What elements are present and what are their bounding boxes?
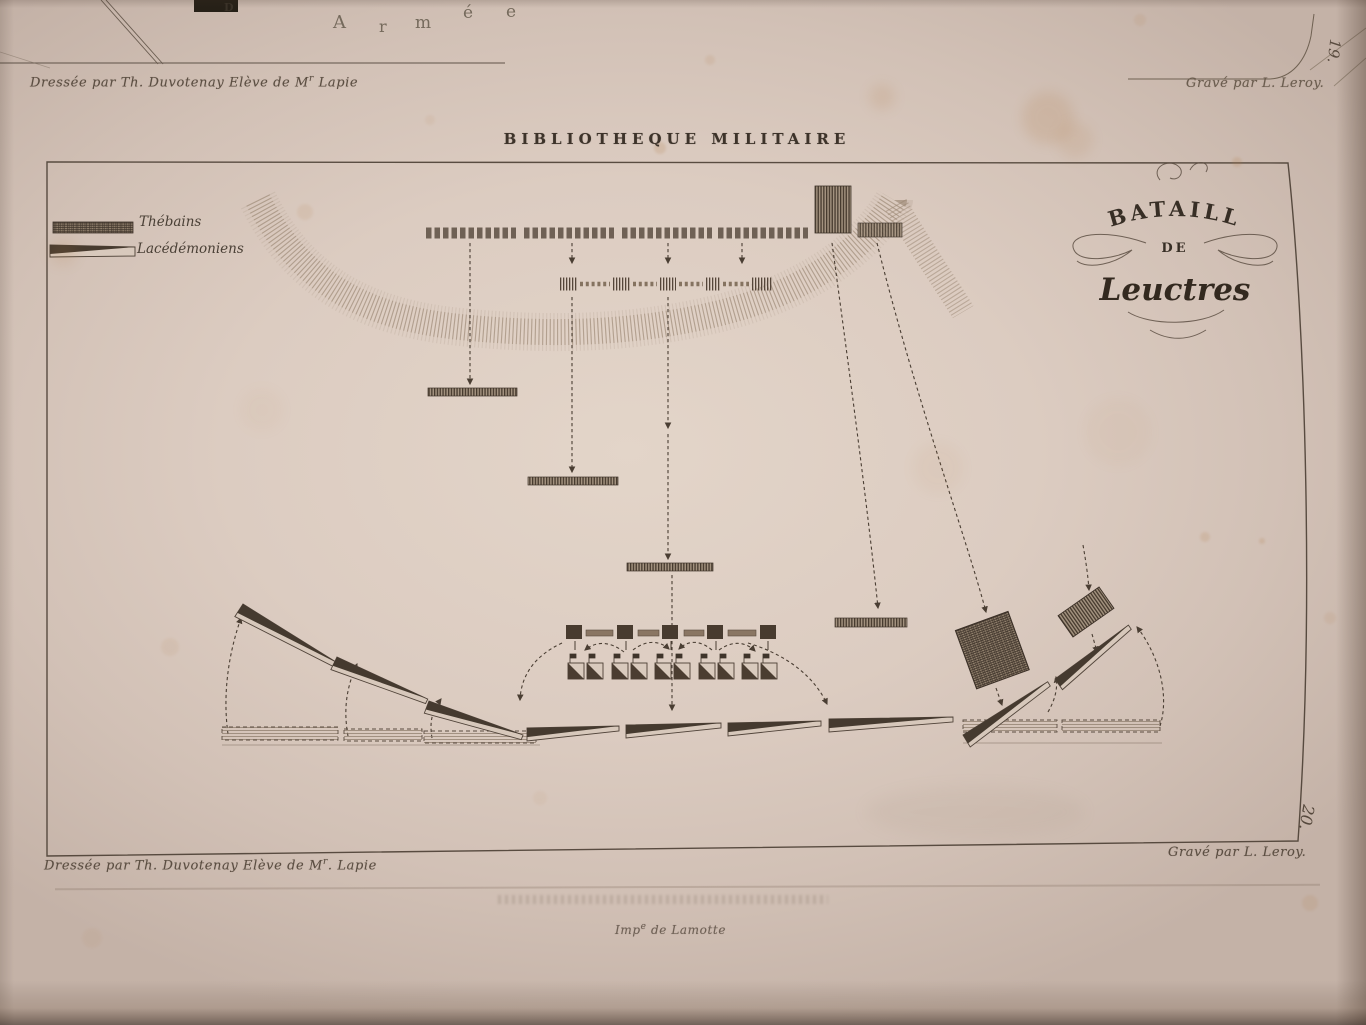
legend-symbol-thebains — [53, 222, 133, 233]
phalanx-wedge — [1054, 625, 1137, 689]
plate-credit-left: Dressée par Th. Duvotenay Elève de Mr. L… — [44, 857, 377, 873]
imprint-text: Imp — [615, 923, 641, 937]
armee-letter-e2: e — [506, 2, 516, 22]
plate-credit-right: Gravé par L. Leroy. — [1168, 845, 1306, 860]
theban-column-grid-block — [955, 611, 1029, 688]
scanned-atlas-page: BATAILLE DE Leuctres Dressée par Th. Duv… — [0, 0, 1366, 1025]
legend-label-thebains: Thébains — [139, 214, 201, 230]
upper-credit-right: Gravé par L. Leroy. — [1186, 76, 1324, 91]
upper-credit-left-end: Lapie — [314, 75, 358, 90]
phalanx-wedge — [331, 655, 428, 713]
upper-plate-fragment-letter: D — [224, 1, 234, 14]
series-title: BIBLIOTHEQUE MILITAIRE — [477, 130, 877, 148]
cartouche-title-line3: Leuctres — [1099, 272, 1251, 308]
theban-detachment-block — [1058, 587, 1114, 637]
plate-credit-left-text: Dressée par Th. Duvotenay Elève de M — [44, 858, 323, 873]
armee-letter-e1: é — [463, 3, 473, 23]
terrain-ridge-hatching — [258, 200, 963, 332]
legend-label-lacedemoniens: Lacédémoniens — [137, 241, 244, 257]
phalanx-wedge — [829, 717, 953, 732]
upper-credit-left-text: Dressée par Th. Duvotenay Elève de M — [30, 75, 309, 90]
imprint: Impe de Lamotte — [615, 922, 726, 937]
phalanx-wedge — [527, 726, 619, 741]
armee-letter-m: m — [415, 13, 431, 33]
armee-letter-r: r — [379, 17, 387, 36]
phalanx-wedge — [626, 723, 721, 738]
generated-engraving-marks — [49, 14, 1336, 948]
cartouche-title-line2: DE — [1161, 241, 1188, 256]
phalanx-wedge — [962, 682, 1056, 747]
upper-plate-number: 19. — [1324, 38, 1345, 64]
imprint-end: de Lamotte — [647, 923, 727, 937]
phalanx-baselines — [222, 743, 1162, 745]
phalanx-wedge — [728, 721, 821, 736]
plate-border-frame — [47, 162, 1307, 856]
plate-credit-left-end: . Lapie — [328, 858, 377, 873]
armee-letter-a: A — [333, 12, 346, 33]
theban-flank-block — [858, 223, 902, 237]
upper-plate-partial-title: A r m é e — [325, 0, 565, 40]
theban-deep-column-block — [815, 186, 851, 233]
phalanx-wedge — [235, 602, 338, 677]
upper-credit-left: Dressée par Th. Duvotenay Elève de Mr La… — [30, 74, 358, 90]
